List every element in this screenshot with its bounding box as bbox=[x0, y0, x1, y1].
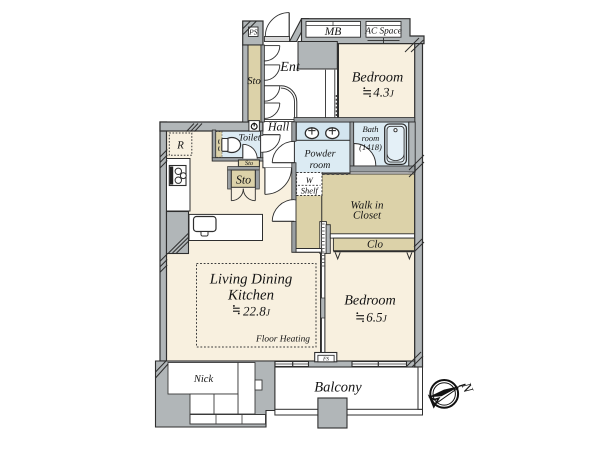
svg-text:Ent: Ent bbox=[279, 60, 301, 75]
svg-text:room: room bbox=[310, 160, 331, 171]
svg-text:(1418): (1418) bbox=[359, 142, 382, 152]
svg-text:Hall: Hall bbox=[267, 120, 290, 134]
svg-text:Floor Heating: Floor Heating bbox=[255, 335, 310, 345]
svg-text:Nick: Nick bbox=[193, 374, 214, 385]
svg-text:Sto: Sto bbox=[236, 173, 251, 187]
svg-text:Powder: Powder bbox=[303, 149, 335, 160]
svg-text:PS: PS bbox=[248, 28, 258, 37]
svg-text:Sto: Sto bbox=[245, 160, 254, 167]
svg-text:Closet: Closet bbox=[353, 210, 382, 222]
svg-text:MB: MB bbox=[324, 26, 342, 38]
svg-text:R: R bbox=[176, 140, 184, 152]
svg-text:FS: FS bbox=[322, 357, 329, 363]
svg-text:AC Space: AC Space bbox=[364, 26, 401, 36]
svg-text:Clo: Clo bbox=[367, 239, 383, 251]
svg-text:Sto: Sto bbox=[247, 76, 260, 87]
svg-text:Bedroom: Bedroom bbox=[344, 293, 396, 309]
svg-text:Balcony: Balcony bbox=[314, 380, 362, 396]
svg-text:Shelf: Shelf bbox=[301, 186, 320, 196]
svg-text:Bedroom: Bedroom bbox=[352, 70, 404, 86]
svg-text:Kitchen: Kitchen bbox=[227, 288, 274, 304]
svg-text:Toilet: Toilet bbox=[239, 132, 261, 143]
svg-text:W: W bbox=[306, 175, 314, 185]
svg-text:Living Dining: Living Dining bbox=[209, 272, 293, 288]
